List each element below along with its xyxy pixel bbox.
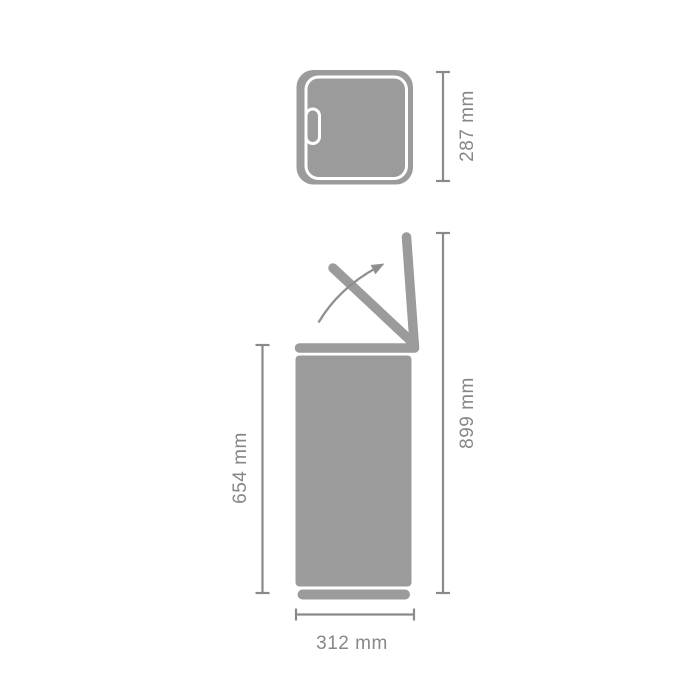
- dimension-line-body-height: [256, 345, 270, 593]
- dimension-label-top-depth: 287 mm: [457, 81, 479, 171]
- bin-body: [296, 356, 412, 587]
- bin-lid-open-45deg: [333, 268, 412, 342]
- dimension-line-top-depth: [436, 72, 450, 181]
- arrow-head: [371, 264, 385, 275]
- dimension-label-width: 312 mm: [307, 633, 397, 655]
- product-dimension-diagram: 287 mm 899 mm 654 mm 312 mm: [0, 0, 700, 700]
- side-view: [296, 237, 415, 600]
- bin-lid-handle: [306, 109, 320, 144]
- dimension-line-total-height: [436, 233, 450, 593]
- diagram-canvas: [0, 0, 700, 700]
- dimension-label-body-height: 654 mm: [230, 423, 252, 513]
- lid-opening-arrow-icon: [319, 264, 385, 323]
- dimension-label-total-height: 899 mm: [457, 368, 479, 458]
- dimension-line-width: [296, 609, 414, 621]
- top-view: [297, 70, 414, 185]
- bin-base: [298, 590, 411, 600]
